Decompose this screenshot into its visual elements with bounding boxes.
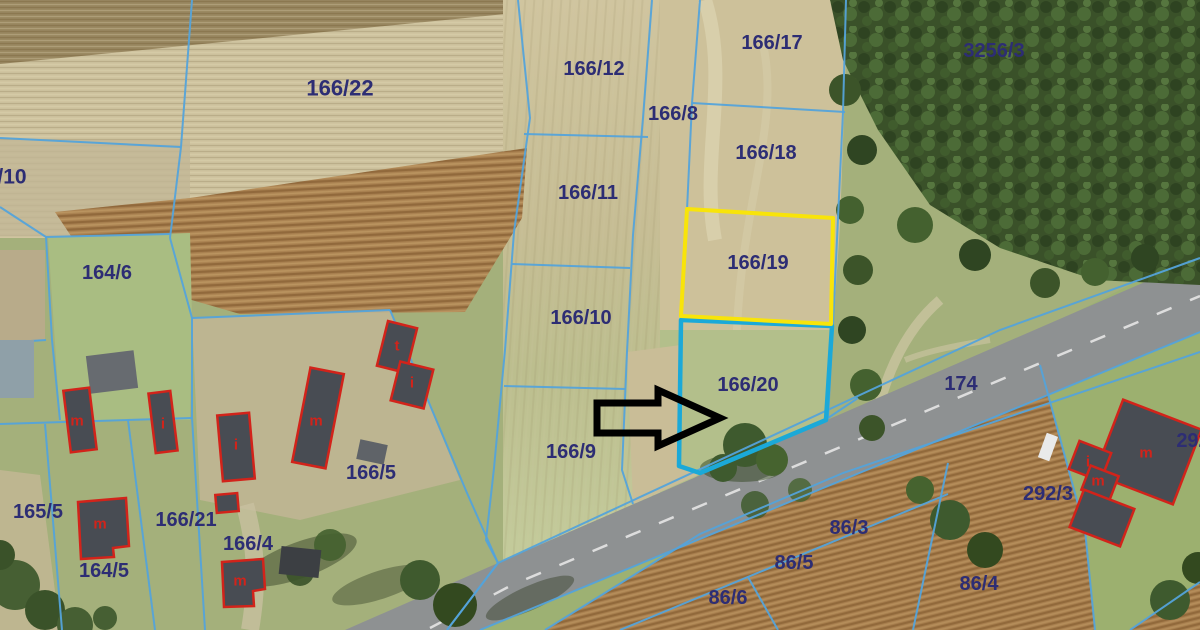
parcel-label-174: 174	[944, 373, 978, 395]
parcel-label-292: 292	[1176, 430, 1200, 452]
parcel-label-166/8: 166/8	[648, 103, 698, 125]
building-label-i: i	[161, 415, 165, 432]
shed	[0, 340, 34, 398]
parcel-label-166/10: 166/10	[550, 307, 611, 329]
building-label-m: m	[1091, 472, 1104, 489]
parcel-label-166/4: 166/4	[223, 533, 274, 555]
building-label-m: m	[70, 412, 83, 429]
parcel-label-166/20: 166/20	[717, 374, 778, 396]
parcel-label-164/6: 164/6	[82, 262, 132, 284]
parcel-label-166/12: 166/12	[563, 58, 624, 80]
building-label-m: m	[309, 412, 322, 429]
parcel-label-164/5: 164/5	[79, 560, 129, 582]
parcel-label-166/17: 166/17	[741, 32, 802, 54]
parcel-label-292/3: 292/3	[1023, 483, 1073, 505]
parcel-label-166/21: 166/21	[155, 509, 216, 531]
building-label-m: m	[233, 572, 246, 589]
parcel-label-166/18: 166/18	[735, 142, 796, 164]
parcel-label-3256/3: 3256/3	[963, 40, 1024, 62]
building-label-i: i	[234, 436, 238, 453]
cadastral-map[interactable]: 166/22/10164/6166/12166/8166/17166/18325…	[0, 0, 1200, 630]
parcel-label-86/5: 86/5	[775, 552, 814, 574]
building-label-i: i	[410, 374, 414, 391]
building-label-i: i	[1086, 453, 1090, 470]
building-label-t: t	[395, 337, 400, 354]
parcel-label-86/3: 86/3	[830, 517, 869, 539]
gray-roof-building	[86, 350, 138, 394]
parcel-label-166/5: 166/5	[346, 462, 396, 484]
parcel-label-86/6: 86/6	[709, 587, 748, 609]
parcel-label-166/11: 166/11	[558, 182, 618, 204]
parcel-label-166/19: 166/19	[727, 252, 788, 274]
dark-shed	[279, 546, 322, 578]
parcel-label-166/22: 166/22	[306, 76, 373, 101]
parcel-label-165/5: 165/5	[13, 501, 63, 523]
map-canvas[interactable]: 166/22/10164/6166/12166/8166/17166/18325…	[0, 0, 1200, 630]
parcel-label-/10: /10	[0, 165, 27, 188]
building-label-m: m	[1139, 444, 1152, 461]
parcel-label-166/9: 166/9	[546, 441, 596, 463]
parcel-label-86/4: 86/4	[960, 573, 1000, 595]
building-label-m: m	[93, 515, 106, 532]
